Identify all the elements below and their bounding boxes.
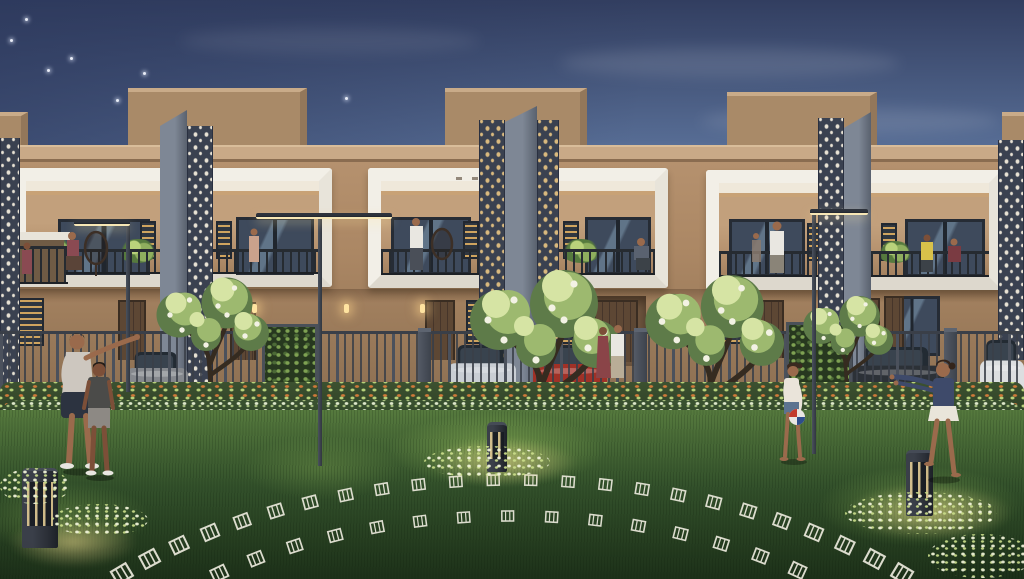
people [0, 0, 1024, 579]
girl-with-ball [780, 362, 808, 465]
architectural-render [0, 0, 1024, 579]
girl-reaching [890, 360, 962, 484]
balcony-people [22, 218, 961, 276]
porch-couple [596, 325, 624, 378]
